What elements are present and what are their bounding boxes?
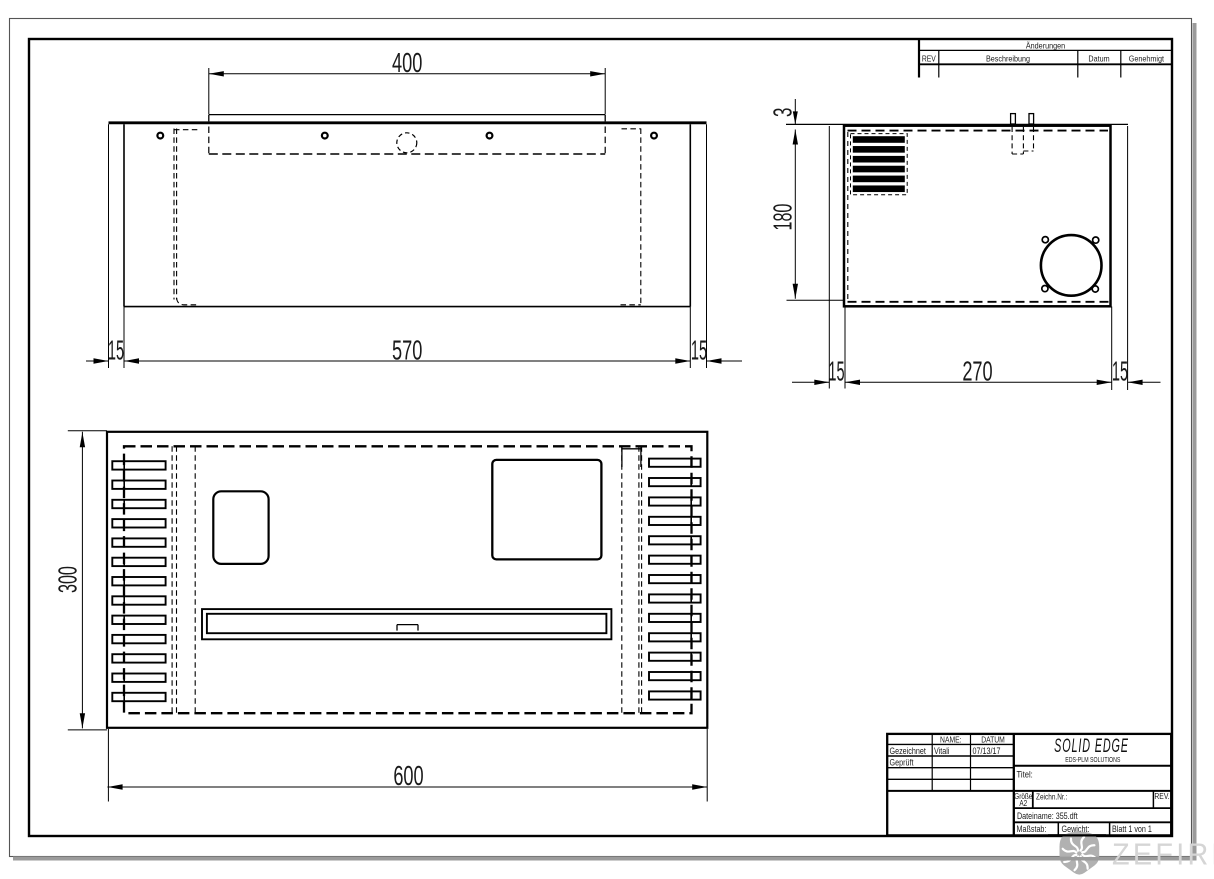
svg-text:Änderungen: Änderungen — [1026, 41, 1065, 51]
svg-text:A2: A2 — [1019, 798, 1027, 808]
svg-text:Maßstab:: Maßstab: — [1017, 824, 1047, 834]
svg-text:15: 15 — [108, 334, 124, 365]
svg-text:570: 570 — [392, 336, 422, 367]
svg-text:180: 180 — [767, 204, 797, 231]
svg-text:Titel:: Titel: — [1017, 769, 1033, 780]
svg-text:Genehmigt: Genehmigt — [1129, 54, 1165, 64]
svg-text:15: 15 — [828, 355, 844, 386]
svg-text:300: 300 — [52, 566, 82, 593]
svg-text:15: 15 — [691, 334, 707, 365]
svg-text:600: 600 — [393, 761, 423, 792]
svg-text:Vitali: Vitali — [934, 746, 950, 756]
svg-text:NAME:: NAME: — [940, 735, 961, 745]
svg-text:Geprüft: Geprüft — [890, 758, 915, 768]
svg-text:SOLID EDGE: SOLID EDGE — [1054, 736, 1129, 757]
svg-text:Zeichn.Nr.:: Zeichn.Nr.: — [1036, 791, 1067, 801]
svg-text:ZEFIRE: ZEFIRE — [1112, 838, 1214, 872]
svg-text:Blatt 1 von 1: Blatt 1 von 1 — [1112, 824, 1152, 834]
svg-text:Datum: Datum — [1088, 54, 1110, 64]
svg-text:400: 400 — [392, 48, 422, 79]
svg-text:3: 3 — [768, 108, 798, 117]
svg-text:07/13/17: 07/13/17 — [973, 746, 1001, 756]
svg-text:15: 15 — [1112, 355, 1128, 386]
svg-text:Dateiname: 355.dft: Dateiname: 355.dft — [1017, 811, 1078, 821]
svg-text:REV.: REV. — [1154, 791, 1169, 801]
svg-text:DATUM: DATUM — [981, 735, 1005, 745]
svg-text:Gezeichnet: Gezeichnet — [890, 746, 927, 756]
svg-text:REV: REV — [922, 54, 936, 64]
svg-text:Beschreibung: Beschreibung — [986, 54, 1030, 64]
svg-text:270: 270 — [962, 357, 992, 388]
svg-text:EDS-PLM SOLUTIONS: EDS-PLM SOLUTIONS — [1065, 756, 1120, 764]
